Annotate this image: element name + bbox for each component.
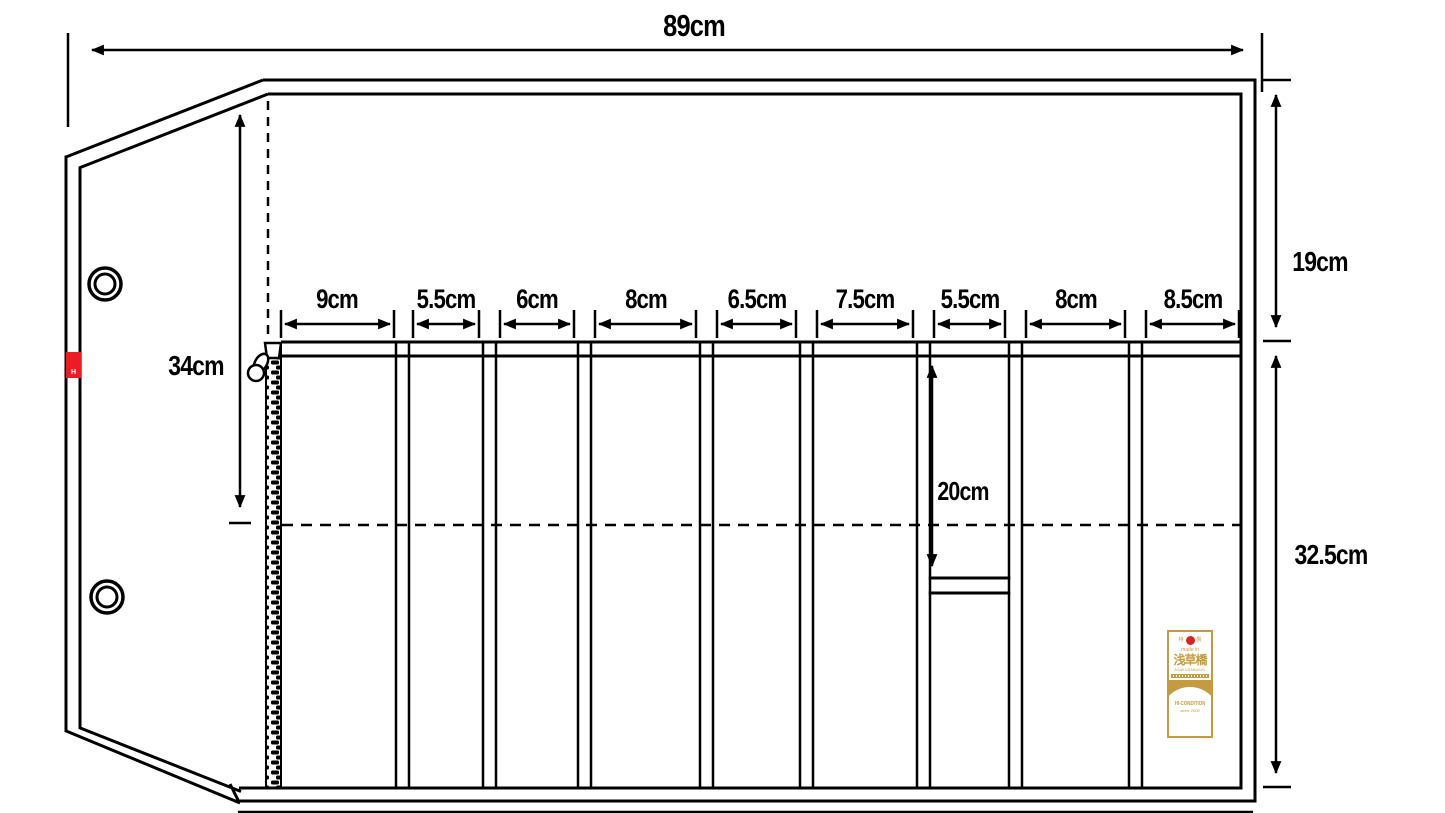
grommet-top (89, 268, 121, 300)
brand-name: HI-CONDITION (1175, 702, 1206, 708)
dim-label-pocket-2: 5.5cm (401, 286, 491, 313)
brand-label: 特 製 made in 浅草橋 ASAKUSABASHI HI-CONDITIO… (1167, 630, 1213, 738)
red-tab: H (66, 352, 81, 378)
brand-place-romaji: ASAKUSABASHI (1175, 668, 1206, 672)
bridge-arch-icon (1169, 680, 1211, 700)
dim-label-pocket-3: 6cm (492, 286, 582, 313)
brand-since: since 2009 (1180, 709, 1199, 713)
dim-label-pocket-1: 9cm (292, 286, 382, 313)
red-sun-icon (1186, 636, 1195, 645)
dim-arrows-pocket-widths (281, 310, 1239, 338)
dim-label-pocket-depth: 20cm (918, 478, 1008, 504)
dim-label-pocket-4: 8cm (601, 286, 691, 313)
zipper (248, 343, 281, 787)
brand-place-kanji: 浅草橋 (1173, 654, 1206, 666)
dim-label-upper-height: 19cm (1275, 248, 1365, 276)
flap-outline (65, 80, 268, 803)
dim-label-overall-width: 89cm (645, 10, 743, 41)
grommet-bottom (91, 581, 123, 613)
brand-seal-left: 特 (1178, 638, 1183, 643)
diagram-linework (0, 0, 1445, 813)
diagram-canvas: 89cm 34cm 19cm 32.5cm 20cm 9cm 5.5cm 6cm… (0, 0, 1445, 813)
main-body-outline (230, 79, 1257, 813)
deep-pocket-bottom (929, 578, 1011, 593)
dim-arrow-upper-height (1263, 80, 1291, 341)
dim-label-pocket-9: 8.5cm (1148, 286, 1238, 313)
brand-seal: 特 製 (1178, 636, 1201, 645)
pocket-dividers (396, 341, 1142, 788)
bridge-dome (1169, 687, 1211, 700)
dim-arrow-flap-height (229, 115, 251, 523)
red-tab-letter: H (71, 369, 76, 376)
dim-label-pocket-5: 6.5cm (712, 286, 802, 313)
dim-label-lower-height: 32.5cm (1278, 541, 1385, 569)
brand-seal-right: 製 (1197, 638, 1202, 643)
brand-deco-band (1171, 674, 1209, 678)
dim-label-pocket-6: 7.5cm (820, 286, 910, 313)
dim-label-pocket-8: 8cm (1031, 286, 1121, 313)
dim-label-flap-height: 34cm (151, 352, 241, 380)
pocket-top-band (281, 342, 1243, 356)
dim-arrow-lower-height (1263, 356, 1291, 787)
dim-label-pocket-7: 5.5cm (925, 286, 1015, 313)
